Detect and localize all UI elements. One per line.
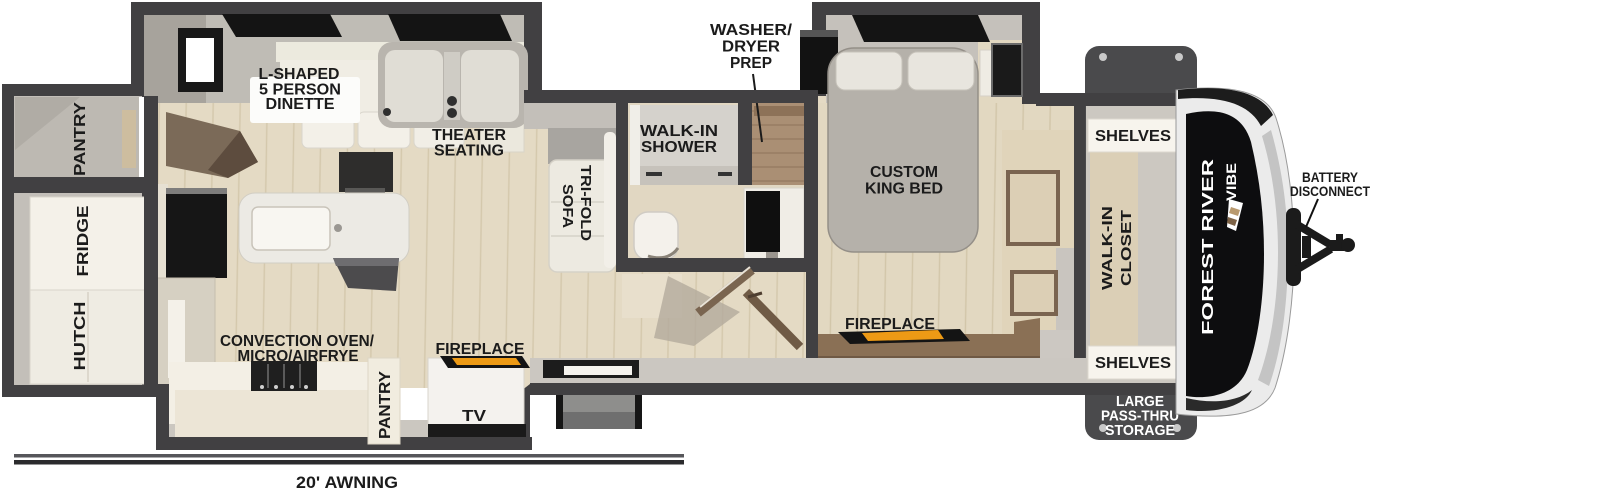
svg-text:THEATER: THEATER xyxy=(432,127,506,144)
svg-text:CLOSET: CLOSET xyxy=(1118,210,1135,286)
svg-text:FRIDGE: FRIDGE xyxy=(75,205,92,276)
svg-text:L-SHAPED: L-SHAPED xyxy=(259,66,340,83)
svg-text:TV: TV xyxy=(462,408,486,425)
svg-text:KING BED: KING BED xyxy=(865,181,943,198)
svg-text:FIREPLACE: FIREPLACE xyxy=(845,316,935,333)
svg-text:MICRO/AIRFRYE: MICRO/AIRFRYE xyxy=(238,348,359,365)
svg-text:SEATING: SEATING xyxy=(434,143,504,160)
svg-text:VIBE: VIBE xyxy=(1224,163,1239,201)
svg-text:SHOWER: SHOWER xyxy=(641,139,717,156)
svg-text:PANTRY: PANTRY xyxy=(72,102,89,176)
svg-text:SHELVES: SHELVES xyxy=(1095,128,1171,145)
svg-text:WALK-IN: WALK-IN xyxy=(1099,206,1116,290)
svg-text:SHELVES: SHELVES xyxy=(1095,355,1171,372)
svg-text:CUSTOM: CUSTOM xyxy=(870,164,938,181)
svg-text:20' AWNING: 20' AWNING xyxy=(296,473,398,488)
svg-text:FOREST RIVER: FOREST RIVER xyxy=(1200,158,1217,335)
svg-text:DISCONNECT: DISCONNECT xyxy=(1290,183,1370,199)
svg-text:SOFA: SOFA xyxy=(559,184,576,228)
svg-text:HUTCH: HUTCH xyxy=(72,302,89,371)
svg-text:PREP: PREP xyxy=(730,55,772,72)
svg-text:DINETTE: DINETTE xyxy=(266,96,335,113)
svg-text:PANTRY: PANTRY xyxy=(377,371,394,439)
svg-text:STORAGE: STORAGE xyxy=(1105,422,1175,439)
svg-text:DRYER: DRYER xyxy=(722,39,780,56)
svg-text:FIREPLACE: FIREPLACE xyxy=(436,341,525,358)
svg-text:WASHER/: WASHER/ xyxy=(710,22,793,39)
svg-text:WALK-IN: WALK-IN xyxy=(640,123,718,140)
svg-text:TRI-FOLD: TRI-FOLD xyxy=(577,165,594,241)
